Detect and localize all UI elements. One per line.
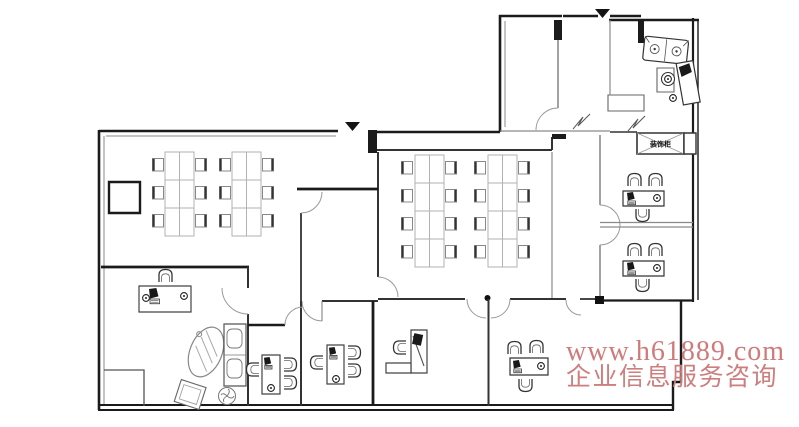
floor-plan-canvas: 装饰柜 xyxy=(0,0,799,427)
meeting-room-small xyxy=(297,189,378,321)
desk-return xyxy=(386,363,411,373)
fan xyxy=(219,388,236,405)
small-office-3 xyxy=(386,330,427,373)
wall-cabinet xyxy=(109,182,140,213)
entry-hall xyxy=(499,15,645,132)
desk-bank xyxy=(165,152,261,236)
office-right-1 xyxy=(623,174,664,222)
corner-closet xyxy=(104,370,144,406)
small-office-2 xyxy=(311,345,361,384)
open-office-middle xyxy=(377,134,566,298)
door-swing-symbol xyxy=(628,116,645,131)
open-office-left xyxy=(109,152,274,236)
lounge-top-right xyxy=(608,36,700,111)
watermark-url: www.h61889.com xyxy=(566,338,785,366)
sofa xyxy=(642,36,688,64)
oval-table xyxy=(181,322,230,382)
watermark-caption: 企业信息服务咨询 xyxy=(566,365,778,390)
cabinet-label: 装饰柜 xyxy=(649,140,671,149)
private-offices-right xyxy=(600,135,693,300)
door-swing-symbol xyxy=(573,114,590,129)
wall-pier xyxy=(368,130,377,153)
office-right-2 xyxy=(623,244,664,292)
entrance-marker-icon xyxy=(345,9,610,131)
entry-pier xyxy=(638,20,644,43)
small-office-4 xyxy=(508,341,548,392)
sofa xyxy=(224,324,246,386)
side-table xyxy=(608,95,644,111)
wall-desk xyxy=(676,61,700,105)
desk-bank xyxy=(415,155,517,267)
small-office-1 xyxy=(247,355,297,394)
